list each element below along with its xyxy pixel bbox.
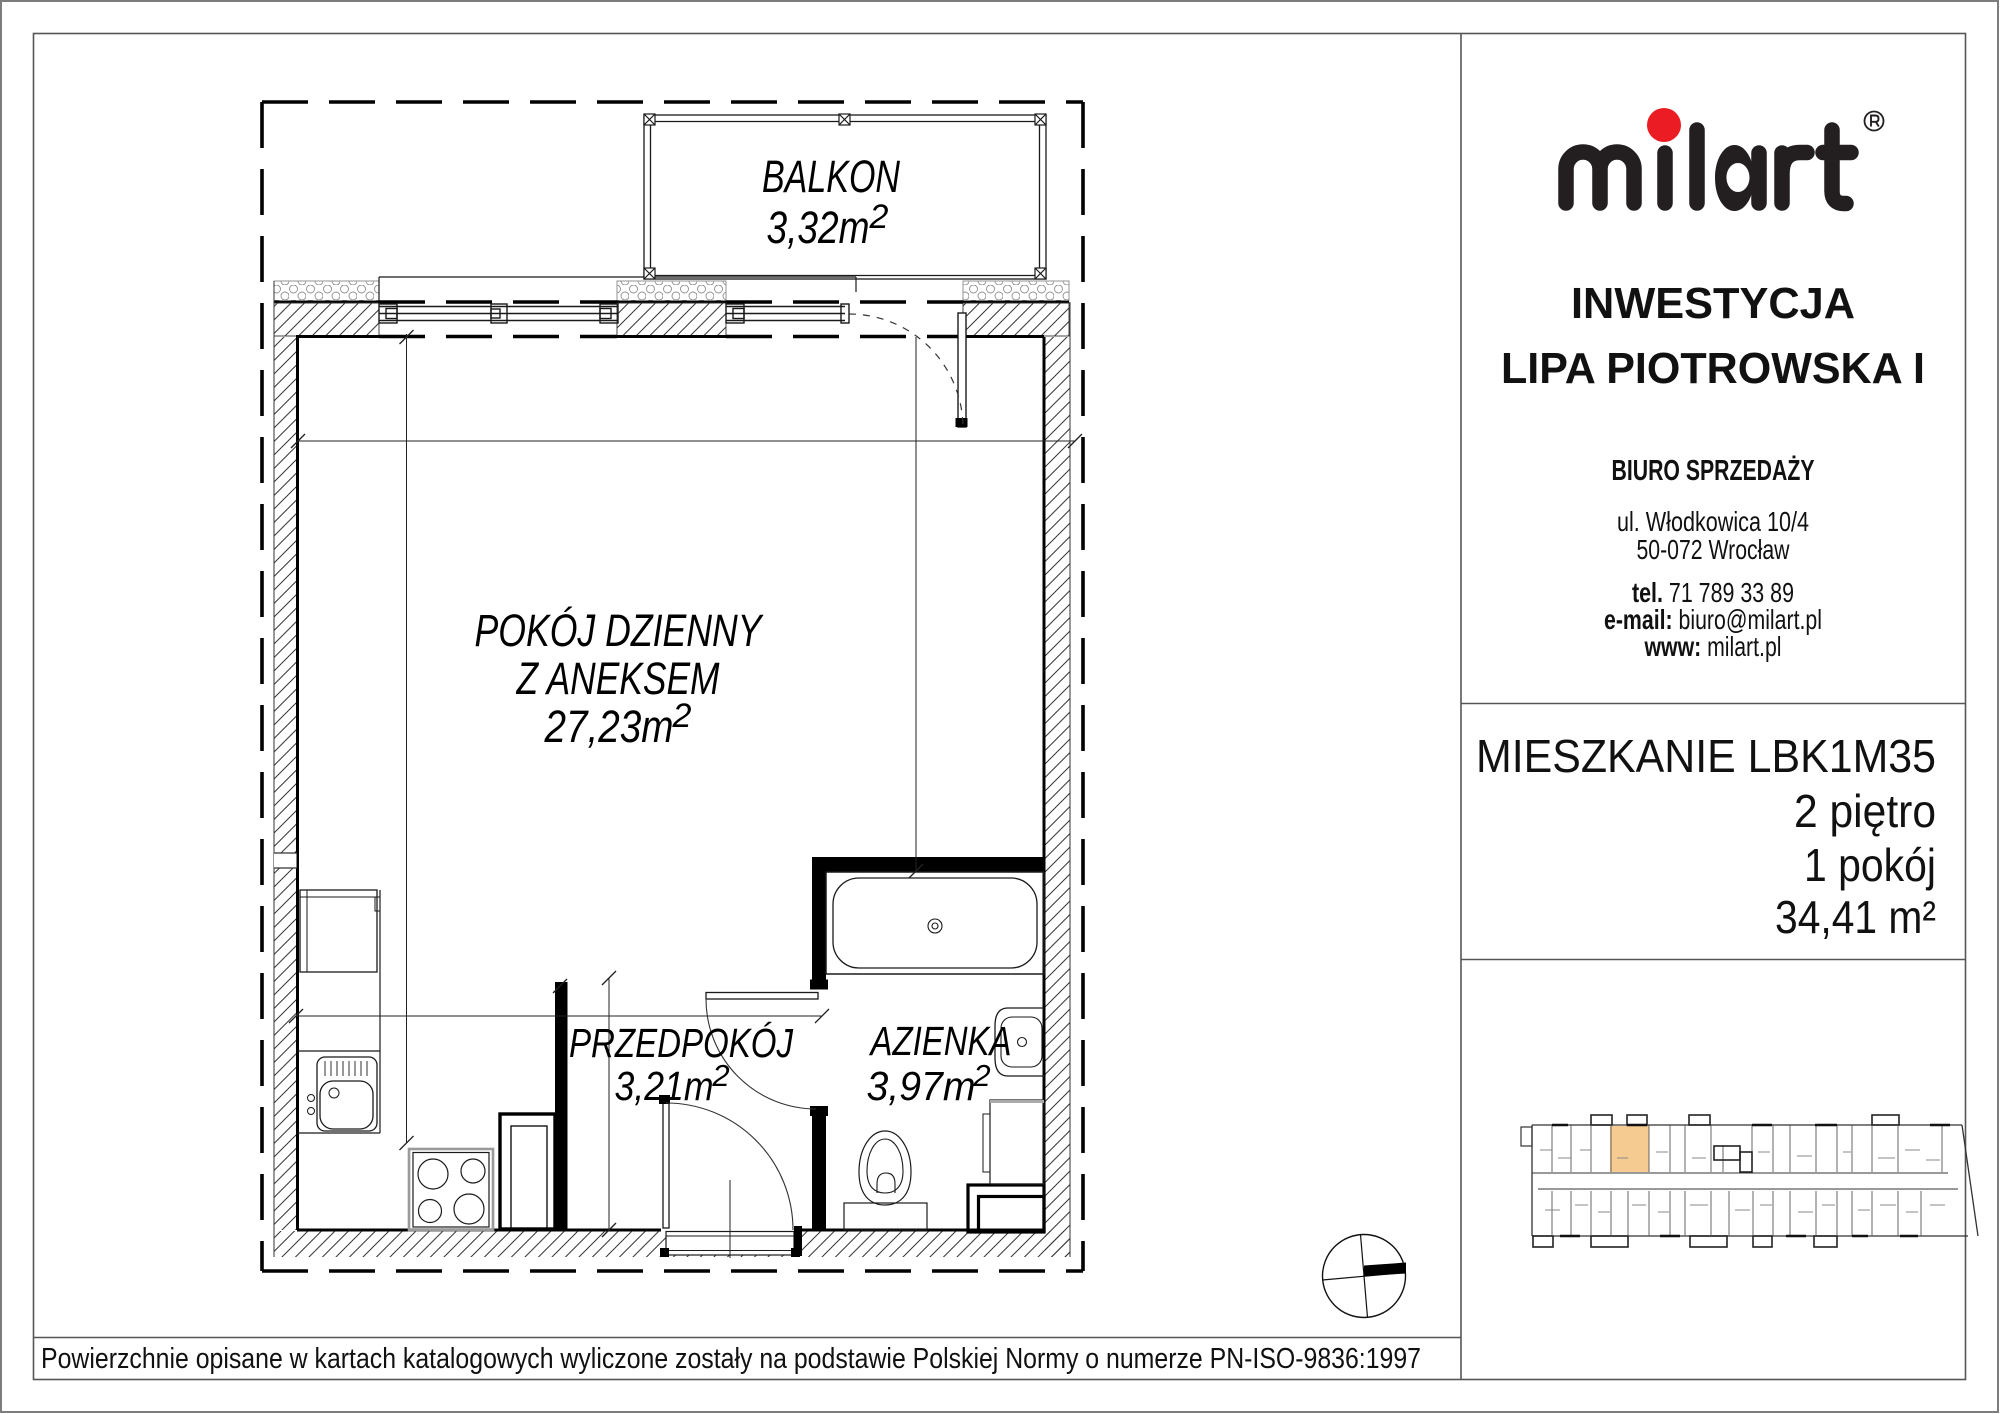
svg-text:1 pokój: 1 pokój [1804,839,1936,891]
svg-text:2: 2 [711,1058,729,1093]
svg-text:www: milart.pl: www: milart.pl [1644,631,1782,662]
svg-text:ul. Włodkowica 10/4: ul. Włodkowica 10/4 [1617,506,1809,537]
svg-text:50-072 Wrocław: 50-072 Wrocław [1637,534,1791,565]
svg-text:3,32m: 3,32m [767,202,870,253]
svg-text:34,41 m²: 34,41 m² [1775,891,1936,943]
svg-text:BIURO SPRZEDAŻY: BIURO SPRZEDAŻY [1612,455,1815,487]
svg-text:2: 2 [972,1058,990,1093]
svg-text:BALKON: BALKON [762,151,900,202]
svg-text:MIESZKANIE LBK1M35: MIESZKANIE LBK1M35 [1476,730,1936,782]
svg-text:3,21m: 3,21m [615,1063,714,1109]
svg-text:2 piętro: 2 piętro [1794,785,1936,837]
svg-text:2: 2 [672,697,692,735]
svg-text:2: 2 [869,198,889,236]
svg-text:Powierzchnie opisane w kartach: Powierzchnie opisane w kartach katalogow… [41,1343,1421,1375]
svg-text:PRZEDPOKÓJ: PRZEDPOKÓJ [569,1020,793,1066]
svg-text:POKÓJ DZIENNY: POKÓJ DZIENNY [475,605,764,656]
svg-text:INWESTYCJA: INWESTYCJA [1571,279,1855,328]
svg-text:3,97m: 3,97m [867,1063,976,1109]
svg-text:27,23m: 27,23m [544,701,674,752]
svg-text:LIPA PIOTROWSKA I: LIPA PIOTROWSKA I [1501,344,1925,393]
